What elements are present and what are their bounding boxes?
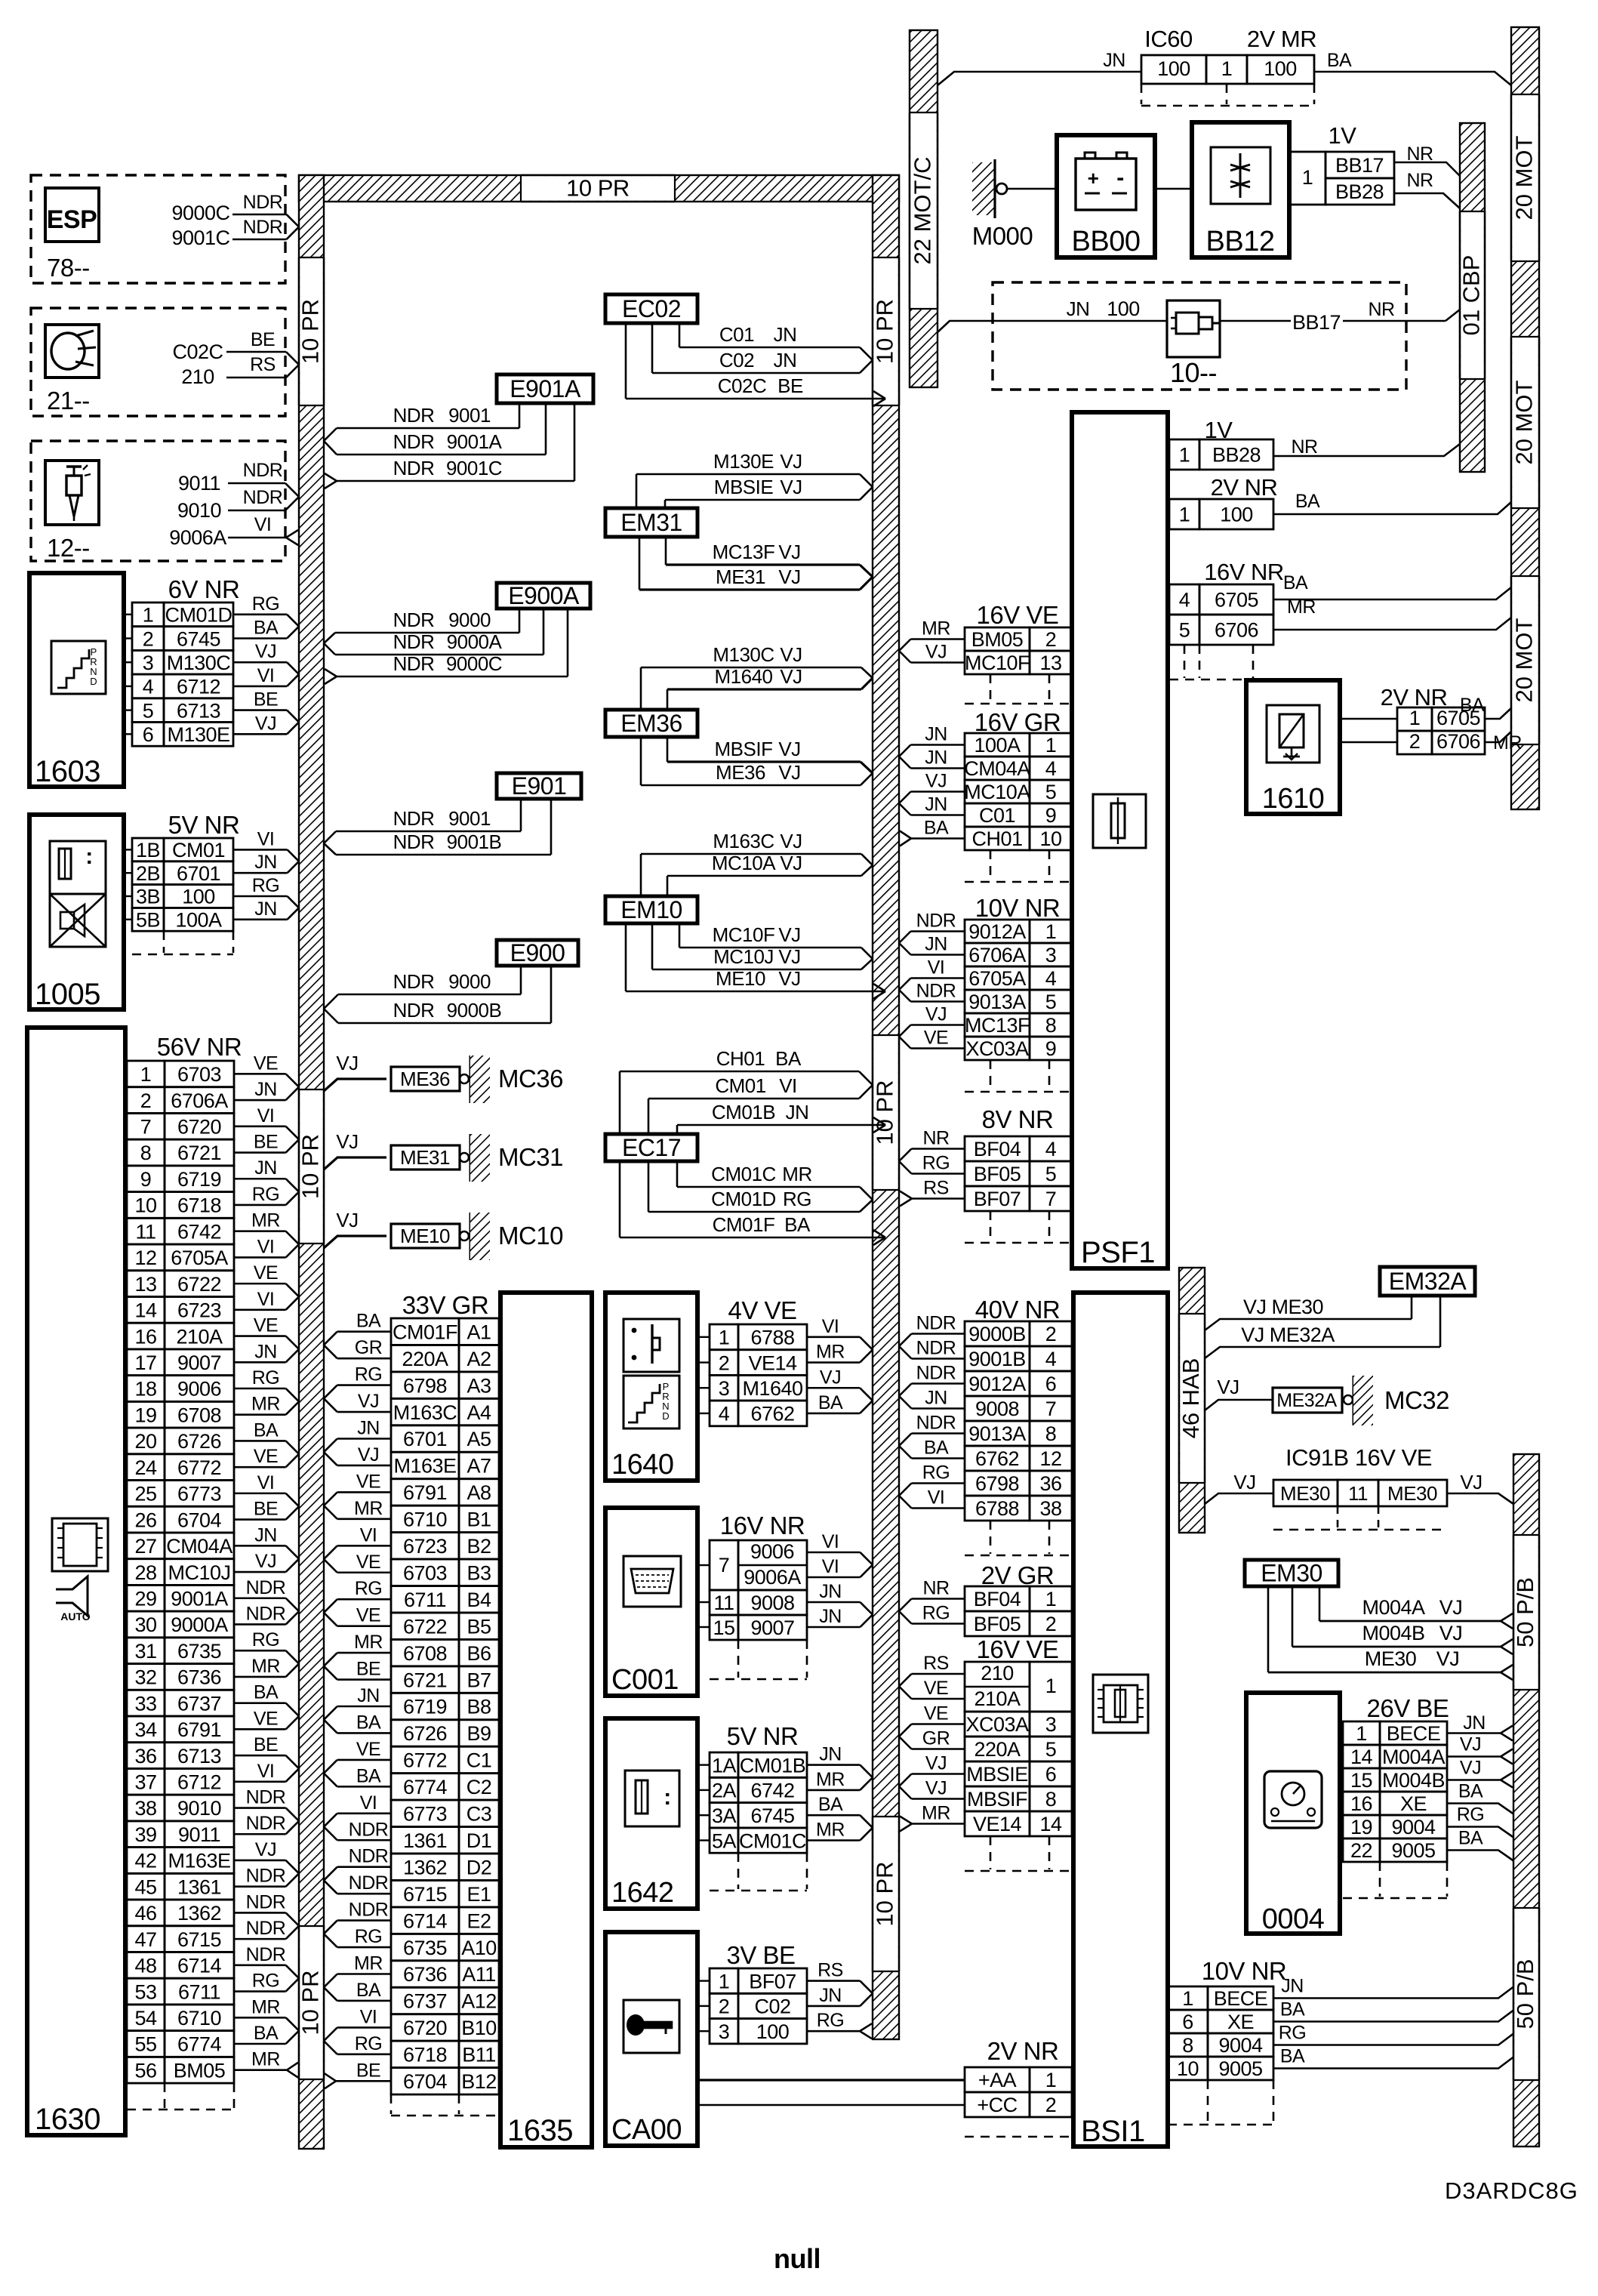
svg-text:BA: BA xyxy=(254,1682,279,1703)
svg-text:9001B: 9001B xyxy=(968,1348,1026,1370)
svg-text:10 PR: 10 PR xyxy=(872,1861,898,1926)
svg-text:VJ: VJ xyxy=(255,1839,276,1860)
svg-text:6706A: 6706A xyxy=(171,1089,228,1112)
svg-text:JN: JN xyxy=(819,1744,842,1765)
svg-text:210: 210 xyxy=(981,1662,1014,1684)
svg-text:1361: 1361 xyxy=(403,1829,447,1852)
svg-text:MR: MR xyxy=(354,1632,383,1653)
svg-text:10: 10 xyxy=(134,1194,156,1217)
svg-text:CM01D: CM01D xyxy=(711,1188,776,1210)
svg-text:46 HAB: 46 HAB xyxy=(1178,1358,1204,1439)
svg-text:7: 7 xyxy=(1045,1398,1057,1420)
svg-text:20 MOT: 20 MOT xyxy=(1511,135,1538,220)
svg-text:2: 2 xyxy=(719,1996,730,2018)
svg-text:NDR: NDR xyxy=(393,807,435,830)
svg-text:JN: JN xyxy=(357,1418,380,1439)
svg-text:VI: VI xyxy=(257,1472,275,1493)
svg-text:B8: B8 xyxy=(466,1696,491,1718)
svg-text:28: 28 xyxy=(134,1561,156,1584)
svg-text:D3ARDC8G: D3ARDC8G xyxy=(1445,2177,1578,2204)
svg-text:6710: 6710 xyxy=(403,1509,447,1531)
svg-text:CM01F: CM01F xyxy=(713,1213,775,1236)
svg-text:8: 8 xyxy=(140,1142,152,1164)
svg-text:100A: 100A xyxy=(974,734,1021,757)
svg-text:6705: 6705 xyxy=(1215,589,1258,612)
svg-text:VE: VE xyxy=(254,1446,278,1467)
svg-text:JN: JN xyxy=(254,1157,277,1179)
svg-text:E901: E901 xyxy=(512,772,567,800)
svg-text:EM30: EM30 xyxy=(1261,1560,1322,1587)
svg-text:NDR: NDR xyxy=(349,1900,389,1921)
svg-text:JN: JN xyxy=(925,747,947,769)
svg-text:VE14: VE14 xyxy=(748,1351,797,1374)
svg-text:9000A: 9000A xyxy=(171,1613,228,1636)
svg-text:1: 1 xyxy=(1179,444,1190,467)
svg-text:NDR: NDR xyxy=(916,1338,956,1359)
svg-text:NDR: NDR xyxy=(246,1603,286,1624)
svg-text:BB28: BB28 xyxy=(1335,180,1384,203)
svg-text:BB00: BB00 xyxy=(1072,226,1141,257)
svg-text:1362: 1362 xyxy=(403,1856,447,1878)
svg-text:10 PR: 10 PR xyxy=(297,299,324,364)
svg-text:6798: 6798 xyxy=(975,1472,1019,1495)
svg-text:BA: BA xyxy=(254,2023,279,2044)
svg-text:JN: JN xyxy=(925,934,947,955)
svg-text:1A: 1A xyxy=(712,1754,737,1777)
svg-text:10V NR: 10V NR xyxy=(1202,1957,1287,1985)
svg-text:JN: JN xyxy=(254,1341,277,1362)
svg-text:6726: 6726 xyxy=(403,1722,447,1745)
svg-text:38: 38 xyxy=(1039,1497,1061,1520)
svg-text:C001: C001 xyxy=(611,1664,679,1696)
svg-text:VJ: VJ xyxy=(778,566,800,588)
svg-text:M130E: M130E xyxy=(713,450,774,473)
svg-text:BM05: BM05 xyxy=(174,2059,226,2082)
svg-text:9000B: 9000B xyxy=(968,1323,1026,1345)
svg-text:8V NR: 8V NR xyxy=(982,1105,1054,1133)
svg-text:MR: MR xyxy=(782,1163,811,1185)
svg-text:15: 15 xyxy=(1350,1769,1372,1792)
svg-text:9010: 9010 xyxy=(177,499,221,522)
svg-text:33: 33 xyxy=(134,1692,156,1715)
svg-text:CM01: CM01 xyxy=(172,839,225,861)
svg-text:NDR: NDR xyxy=(393,609,435,631)
svg-text:5: 5 xyxy=(1179,619,1190,642)
svg-text:10 PR: 10 PR xyxy=(297,1970,324,2035)
svg-text:25: 25 xyxy=(134,1483,156,1505)
svg-text:BA: BA xyxy=(356,1712,381,1733)
svg-text:6718: 6718 xyxy=(403,2044,447,2066)
svg-text:1005: 1005 xyxy=(35,978,100,1011)
svg-text:B9: B9 xyxy=(466,1722,491,1745)
svg-text:JN: JN xyxy=(254,898,277,920)
svg-text:ESP: ESP xyxy=(47,205,97,234)
svg-text:VI: VI xyxy=(779,1074,797,1097)
svg-text:B4: B4 xyxy=(466,1589,491,1611)
svg-text:6791: 6791 xyxy=(403,1481,447,1504)
svg-text:MC32: MC32 xyxy=(1384,1386,1449,1414)
svg-text:6772: 6772 xyxy=(403,1749,447,1772)
svg-text:4: 4 xyxy=(143,676,154,698)
svg-text::: : xyxy=(664,1785,671,1810)
svg-text:NDR: NDR xyxy=(246,1577,286,1598)
svg-text:MC10J: MC10J xyxy=(168,1561,230,1584)
svg-text:6723: 6723 xyxy=(177,1299,221,1322)
svg-text:CM01D: CM01D xyxy=(165,604,232,627)
svg-text:M130E: M130E xyxy=(167,723,229,746)
svg-text:2V MR: 2V MR xyxy=(1247,26,1316,52)
svg-text:8: 8 xyxy=(1045,1014,1057,1037)
svg-text:NDR: NDR xyxy=(393,630,435,653)
svg-text:NDR: NDR xyxy=(393,831,435,853)
svg-text:D1: D1 xyxy=(466,1829,492,1852)
svg-text:B1: B1 xyxy=(466,1509,491,1531)
svg-text:39: 39 xyxy=(134,1823,156,1846)
svg-text:JN: JN xyxy=(819,1606,842,1627)
svg-text:6: 6 xyxy=(1045,1763,1057,1786)
svg-text:100: 100 xyxy=(1264,57,1297,80)
svg-text:VE: VE xyxy=(356,1471,380,1492)
svg-text:VJ: VJ xyxy=(1439,1622,1463,1644)
svg-text:JN: JN xyxy=(1103,50,1125,71)
svg-text:50 P/B: 50 P/B xyxy=(1512,1577,1538,1647)
svg-text:ME10: ME10 xyxy=(716,967,765,990)
svg-text:11: 11 xyxy=(713,1592,734,1614)
svg-text:NDR: NDR xyxy=(916,1363,956,1384)
svg-text:A7: A7 xyxy=(466,1455,491,1478)
svg-text:VI: VI xyxy=(928,1487,945,1509)
svg-text:JN: JN xyxy=(774,323,797,346)
svg-text:6722: 6722 xyxy=(177,1273,221,1296)
svg-text:MC10: MC10 xyxy=(498,1222,563,1250)
svg-text:9007: 9007 xyxy=(177,1351,221,1374)
svg-text:CM01C: CM01C xyxy=(711,1163,776,1185)
svg-text:6: 6 xyxy=(143,723,154,746)
svg-text:BB28: BB28 xyxy=(1212,444,1261,467)
svg-text:33V GR: 33V GR xyxy=(402,1291,488,1319)
svg-text:9012A: 9012A xyxy=(968,920,1026,943)
svg-text:JN: JN xyxy=(925,794,947,815)
svg-text:MR: MR xyxy=(354,1498,383,1519)
svg-text:VJ: VJ xyxy=(925,771,947,792)
svg-text:NDR: NDR xyxy=(246,1813,286,1834)
svg-text:CH01: CH01 xyxy=(971,827,1022,850)
svg-text:210A: 210A xyxy=(974,1687,1021,1710)
svg-text:JN: JN xyxy=(1463,1712,1486,1734)
svg-text:VE: VE xyxy=(924,1703,948,1724)
svg-text:MC13F: MC13F xyxy=(965,1014,1030,1037)
svg-text:16: 16 xyxy=(134,1325,156,1348)
svg-text:NDR: NDR xyxy=(246,1944,286,1965)
svg-text:6704: 6704 xyxy=(403,2070,448,2093)
svg-text:A12: A12 xyxy=(461,1990,497,2013)
svg-text:12--: 12-- xyxy=(47,534,90,562)
svg-text:3A: 3A xyxy=(712,1804,737,1827)
svg-text:MR: MR xyxy=(251,1210,280,1231)
svg-text:BF04: BF04 xyxy=(974,1138,1021,1160)
svg-text:9: 9 xyxy=(1045,804,1057,827)
svg-text:6745: 6745 xyxy=(750,1804,794,1827)
svg-text:NDR: NDR xyxy=(393,430,435,453)
svg-text:GR: GR xyxy=(355,1337,383,1358)
svg-text:M163C: M163C xyxy=(713,830,774,852)
svg-text:BA: BA xyxy=(1280,2046,1305,2067)
svg-text:VJ: VJ xyxy=(925,1004,947,1025)
svg-text:VJ: VJ xyxy=(778,945,800,968)
svg-text:NDR: NDR xyxy=(246,1866,286,1887)
svg-text:+: + xyxy=(1088,167,1099,190)
svg-text:1361: 1361 xyxy=(177,1875,221,1898)
svg-text:JN: JN xyxy=(925,724,947,745)
svg-text:MC36: MC36 xyxy=(498,1065,563,1093)
svg-text:2: 2 xyxy=(1045,628,1057,651)
svg-text:2: 2 xyxy=(143,627,154,650)
svg-text:B11: B11 xyxy=(462,2044,496,2066)
svg-text:BE: BE xyxy=(254,689,278,710)
svg-text:5A: 5A xyxy=(712,1829,737,1852)
svg-text:MC10A: MC10A xyxy=(964,781,1030,803)
svg-text:C1: C1 xyxy=(466,1749,492,1772)
svg-text:VE: VE xyxy=(356,1552,380,1573)
svg-text:D2: D2 xyxy=(466,1856,492,1878)
svg-text:GR: GR xyxy=(922,1728,950,1749)
svg-text:VI: VI xyxy=(822,1556,839,1577)
svg-text:NDR: NDR xyxy=(393,970,435,993)
svg-text:6726: 6726 xyxy=(177,1430,221,1453)
svg-text:6713: 6713 xyxy=(177,699,220,722)
svg-text:CH01: CH01 xyxy=(716,1047,765,1070)
svg-text:IC60: IC60 xyxy=(1144,26,1193,52)
svg-text:A1: A1 xyxy=(466,1321,491,1343)
svg-text:CM04A: CM04A xyxy=(166,1535,232,1558)
svg-text:6712: 6712 xyxy=(177,1771,221,1794)
svg-text:6723: 6723 xyxy=(403,1535,447,1558)
svg-text:VI: VI xyxy=(257,828,275,849)
svg-text:D: D xyxy=(662,1410,669,1422)
svg-text:9000: 9000 xyxy=(448,970,491,993)
svg-text:9006: 9006 xyxy=(177,1378,221,1401)
svg-text:BA: BA xyxy=(1280,1999,1305,2020)
svg-text:9000: 9000 xyxy=(448,609,491,631)
svg-text:6701: 6701 xyxy=(177,862,220,885)
svg-text:6721: 6721 xyxy=(177,1142,221,1164)
svg-text:15: 15 xyxy=(713,1616,734,1639)
svg-text:210A: 210A xyxy=(176,1325,223,1348)
svg-text:BB17: BB17 xyxy=(1335,154,1384,177)
svg-text:NDR: NDR xyxy=(246,1918,286,1939)
svg-text:NR: NR xyxy=(1291,436,1317,458)
svg-text:XC03A: XC03A xyxy=(965,1037,1029,1060)
svg-text:VJ: VJ xyxy=(1436,1647,1460,1670)
svg-text:NR: NR xyxy=(1406,170,1433,191)
svg-text:6705A: 6705A xyxy=(171,1247,228,1269)
svg-text:6719: 6719 xyxy=(403,1696,447,1718)
svg-text:5: 5 xyxy=(143,699,154,722)
svg-text:C01: C01 xyxy=(719,323,754,346)
svg-text:3: 3 xyxy=(719,2020,730,2043)
svg-text:22: 22 xyxy=(1350,1839,1372,1862)
svg-text:9004: 9004 xyxy=(1391,1816,1436,1838)
svg-text:20: 20 xyxy=(134,1430,156,1453)
svg-text:BE: BE xyxy=(254,1499,278,1520)
svg-text:VJ: VJ xyxy=(255,1551,276,1572)
svg-text:BA: BA xyxy=(775,1047,802,1070)
svg-text:RS: RS xyxy=(817,1960,843,1981)
svg-text:EC02: EC02 xyxy=(622,295,681,322)
svg-text:13: 13 xyxy=(1039,652,1061,674)
svg-text:EC17: EC17 xyxy=(622,1134,681,1161)
svg-text:6710: 6710 xyxy=(177,2007,221,2029)
svg-text:9004: 9004 xyxy=(1218,2034,1263,2057)
svg-text:CA00: CA00 xyxy=(611,2114,682,2146)
svg-text:M163E: M163E xyxy=(393,1455,456,1478)
svg-text:16V VE: 16V VE xyxy=(977,1635,1059,1663)
svg-text:XE: XE xyxy=(1227,2011,1254,2033)
svg-text:6719: 6719 xyxy=(177,1168,221,1191)
svg-text:ME30: ME30 xyxy=(1280,1482,1330,1505)
svg-text:BF05: BF05 xyxy=(974,1613,1021,1635)
svg-text:EM32A: EM32A xyxy=(1389,1268,1467,1295)
svg-text:NDR: NDR xyxy=(349,1819,389,1840)
svg-text:2: 2 xyxy=(719,1351,730,1374)
svg-text:NDR: NDR xyxy=(349,1846,389,1867)
svg-text:5V NR: 5V NR xyxy=(168,811,240,839)
svg-text:MR: MR xyxy=(922,618,950,639)
svg-text:A3: A3 xyxy=(466,1374,491,1397)
svg-text:BF07: BF07 xyxy=(974,1188,1021,1210)
svg-text:MBSIF: MBSIF xyxy=(967,1788,1027,1811)
svg-text:M163C: M163C xyxy=(393,1401,457,1424)
svg-text:RG: RG xyxy=(252,1971,280,1992)
svg-text:VI: VI xyxy=(822,1531,839,1552)
svg-text:BF04: BF04 xyxy=(974,1588,1021,1610)
svg-text:CM04A: CM04A xyxy=(964,757,1030,780)
svg-text:MR: MR xyxy=(251,1394,280,1415)
svg-text:MR: MR xyxy=(251,1656,280,1677)
svg-text:2V GR: 2V GR xyxy=(981,1561,1055,1589)
svg-text:MR: MR xyxy=(251,1996,280,2017)
svg-text:6708: 6708 xyxy=(177,1404,221,1426)
svg-text:1: 1 xyxy=(1045,734,1057,757)
svg-text:NDR: NDR xyxy=(349,1872,389,1894)
svg-text:8: 8 xyxy=(1045,1422,1057,1445)
svg-text:16V GR: 16V GR xyxy=(975,708,1061,736)
svg-text:VJ: VJ xyxy=(336,1052,358,1074)
svg-text:9: 9 xyxy=(1045,1037,1057,1060)
svg-text:VJ: VJ xyxy=(255,641,276,662)
svg-text:JN: JN xyxy=(1281,1976,1304,1997)
svg-text:19: 19 xyxy=(134,1404,156,1426)
svg-text:BM05: BM05 xyxy=(971,628,1024,651)
svg-text:C01: C01 xyxy=(979,804,1015,827)
svg-text:BA: BA xyxy=(784,1213,811,1236)
svg-text:VJ: VJ xyxy=(778,761,800,784)
svg-text:JN: JN xyxy=(786,1101,809,1123)
svg-text:4: 4 xyxy=(1045,1138,1057,1160)
svg-text:5: 5 xyxy=(1045,781,1057,803)
svg-text:RG: RG xyxy=(922,1153,950,1174)
svg-text:ME31: ME31 xyxy=(716,566,765,588)
svg-text:6706A: 6706A xyxy=(968,944,1026,966)
svg-text:ME30: ME30 xyxy=(1365,1647,1417,1670)
svg-text:31: 31 xyxy=(134,1640,156,1663)
svg-text:VJ: VJ xyxy=(780,643,802,666)
svg-text:NDR: NDR xyxy=(393,652,435,675)
svg-text:3: 3 xyxy=(143,652,154,674)
svg-text:6718: 6718 xyxy=(177,1194,221,1217)
svg-text:CM01F: CM01F xyxy=(393,1321,457,1343)
svg-text:220A: 220A xyxy=(402,1348,448,1370)
svg-text:VJ: VJ xyxy=(820,1367,841,1388)
svg-text:BF07: BF07 xyxy=(749,1970,796,1992)
svg-text:10 PR: 10 PR xyxy=(872,299,898,364)
svg-text:1: 1 xyxy=(1409,707,1421,729)
svg-text:6708: 6708 xyxy=(403,1642,447,1665)
svg-text:10 PR: 10 PR xyxy=(297,1134,324,1199)
svg-text:VJ: VJ xyxy=(336,1209,358,1231)
svg-text:RG: RG xyxy=(252,1629,280,1650)
svg-text:9007: 9007 xyxy=(750,1616,794,1639)
svg-text:RG: RG xyxy=(355,2033,383,2054)
svg-text:50 P/B: 50 P/B xyxy=(1512,1959,1538,2029)
svg-text:VJ: VJ xyxy=(255,713,276,734)
svg-text:BB12: BB12 xyxy=(1206,226,1275,257)
svg-text:6788: 6788 xyxy=(750,1327,794,1349)
svg-text:6773: 6773 xyxy=(177,1483,221,1505)
svg-text:26: 26 xyxy=(134,1509,156,1531)
svg-text:1: 1 xyxy=(1179,504,1190,526)
svg-text:MC13F: MC13F xyxy=(713,541,775,563)
svg-text:M000: M000 xyxy=(972,222,1033,250)
svg-text:BF05: BF05 xyxy=(974,1163,1021,1185)
svg-text:56: 56 xyxy=(134,2059,156,2082)
svg-text:C3: C3 xyxy=(466,1803,492,1826)
svg-text:9013A: 9013A xyxy=(968,991,1026,1013)
svg-text:A4: A4 xyxy=(466,1401,491,1424)
svg-text:14: 14 xyxy=(1039,1813,1062,1835)
svg-text:VI: VI xyxy=(360,2006,377,2027)
svg-text:2: 2 xyxy=(1045,2094,1057,2116)
svg-text:JN: JN xyxy=(1067,297,1090,320)
svg-text:7: 7 xyxy=(1045,1188,1057,1210)
svg-text:VJ: VJ xyxy=(780,830,802,852)
svg-text:VI: VI xyxy=(254,514,272,535)
svg-text:19: 19 xyxy=(1350,1816,1372,1838)
svg-text:1: 1 xyxy=(1045,2069,1057,2091)
svg-text:6701: 6701 xyxy=(403,1428,447,1450)
svg-text:RG: RG xyxy=(355,1364,383,1385)
svg-text:B2: B2 xyxy=(466,1535,491,1558)
svg-text:6772: 6772 xyxy=(177,1456,221,1479)
svg-text:M1640: M1640 xyxy=(742,1377,802,1400)
svg-text:M004A: M004A xyxy=(1382,1746,1446,1768)
svg-text:BB17: BB17 xyxy=(1292,311,1341,334)
svg-text:2B: 2B xyxy=(136,862,160,885)
svg-text:9006A: 9006A xyxy=(744,1566,801,1589)
svg-text:1: 1 xyxy=(719,1970,730,1992)
svg-text:6713: 6713 xyxy=(177,1745,221,1767)
svg-text:MR: MR xyxy=(922,1803,950,1824)
svg-text:MR: MR xyxy=(251,2049,280,2070)
svg-text:6737: 6737 xyxy=(177,1692,221,1715)
svg-text:1630: 1630 xyxy=(35,2103,100,2136)
svg-text:78--: 78-- xyxy=(47,254,90,282)
svg-text:40V NR: 40V NR xyxy=(975,1296,1061,1324)
svg-text:D: D xyxy=(90,676,97,687)
svg-text:6715: 6715 xyxy=(403,1883,447,1906)
svg-text:16: 16 xyxy=(1350,1792,1372,1815)
svg-text:VI: VI xyxy=(257,1236,275,1257)
